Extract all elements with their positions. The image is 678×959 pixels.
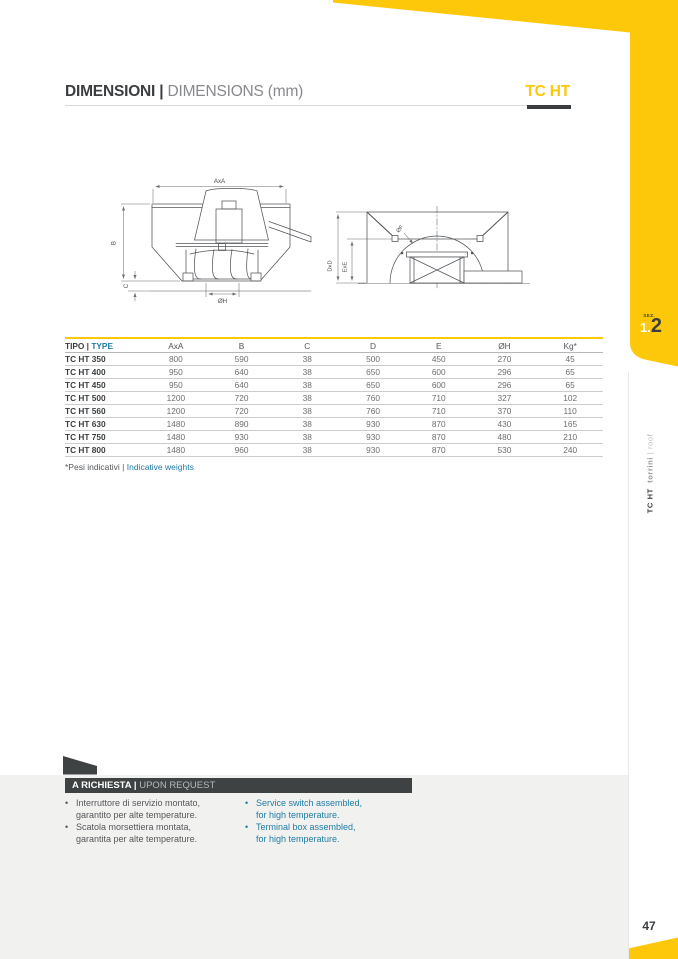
dim-label-of: ØF (395, 224, 405, 234)
table-row: TC HT 560 1200 720 38 760 710 370 110 (65, 405, 603, 418)
table-row: TC HT 800 1480 960 38 930 870 530 240 (65, 444, 603, 457)
title-rule (65, 105, 535, 106)
sidebar-vertical-label: TC HT torrini | roof (646, 418, 657, 530)
dim-label-oh: ØH (218, 298, 227, 305)
table-header-row: TIPO | TYPE AxA B C D E ØH Kg* (65, 339, 603, 353)
footnote-italian: *Pesi indicativi | (65, 462, 124, 472)
section-badge: SEZ. 1. 2 (632, 313, 662, 335)
sidebar-yellow-column (630, 0, 678, 367)
vertical-label-category-it: torrini (646, 457, 655, 483)
table-row: TC HT 630 1480 890 38 930 870 430 165 (65, 418, 603, 431)
request-section-header: A RICHIESTA | UPON REQUEST (65, 778, 412, 793)
table-row: TC HT 350 800 590 38 500 450 270 45 (65, 353, 603, 366)
column-header: Kg* (537, 341, 603, 351)
column-header: E (406, 341, 472, 351)
bullet-icon: • (65, 798, 76, 821)
product-code: TC HT (505, 83, 570, 101)
footnote-english: Indicative weights (127, 462, 194, 472)
vertical-label-product: TC HT (646, 488, 655, 513)
dim-label-b: B (111, 241, 118, 245)
bottom-right-yellow-wedge (628, 938, 678, 959)
top-view-drawing: DxD ExE ØF (328, 206, 531, 289)
side-view-drawing: AxA B C ØH (111, 178, 312, 305)
table-row: TC HT 750 1480 930 38 930 870 480 210 (65, 431, 603, 444)
vertical-label-category-en: roof (646, 434, 655, 449)
bullet-icon: • (65, 822, 76, 845)
column-header: B (209, 341, 275, 351)
section-number-major: 1. (640, 322, 651, 333)
dimensions-table: TIPO | TYPE AxA B C D E ØH Kg* TC HT 350… (65, 337, 603, 457)
bullet-icon: • (245, 822, 256, 845)
dim-label-c: C (123, 283, 130, 288)
table-row: TC HT 400 950 640 38 650 600 296 65 (65, 366, 603, 379)
column-header: ØH (472, 341, 538, 351)
table-row: TC HT 500 1200 720 38 760 710 327 102 (65, 392, 603, 405)
vertical-label-separator: | (646, 452, 655, 455)
request-list-english: • Service switch assembled, for high tem… (245, 798, 420, 846)
table-row: TC HT 450 950 640 38 650 600 296 65 (65, 379, 603, 392)
column-header-type: TIPO | TYPE (65, 341, 143, 351)
dark-wedge (63, 756, 97, 775)
request-header-italian: A RICHIESTA | (72, 780, 137, 791)
product-code-underline (527, 105, 571, 109)
column-header: AxA (143, 341, 209, 351)
dim-label-axa: AxA (214, 178, 226, 185)
list-item: • Terminal box assembled, for high tempe… (245, 822, 420, 845)
section-number-minor: 2 (651, 318, 662, 335)
page-title-italian: DIMENSIONI | (65, 83, 163, 100)
list-item: • Scatola morsettiera montata, garantita… (65, 822, 243, 845)
technical-drawings: AxA B C ØH DxD ExE ØF (100, 163, 570, 318)
request-list-italian: • Interruttore di servizio montato, gara… (65, 798, 243, 846)
bullet-icon: • (245, 798, 256, 821)
column-header: D (340, 341, 406, 351)
page-title: DIMENSIONI | DIMENSIONS (mm) (65, 83, 303, 101)
top-yellow-band (333, 0, 630, 33)
list-item: • Service switch assembled, for high tem… (245, 798, 420, 821)
column-header: C (274, 341, 340, 351)
table-footnote: *Pesi indicativi | Indicative weights (65, 462, 194, 472)
page-edge-line (628, 372, 629, 959)
page-title-english: DIMENSIONS (mm) (168, 83, 304, 100)
dim-label-exe: ExE (343, 262, 349, 273)
request-header-english: UPON REQUEST (139, 780, 215, 791)
page-number: 47 (634, 919, 664, 933)
dim-label-dxd: DxD (328, 260, 334, 271)
list-item: • Interruttore di servizio montato, gara… (65, 798, 243, 821)
